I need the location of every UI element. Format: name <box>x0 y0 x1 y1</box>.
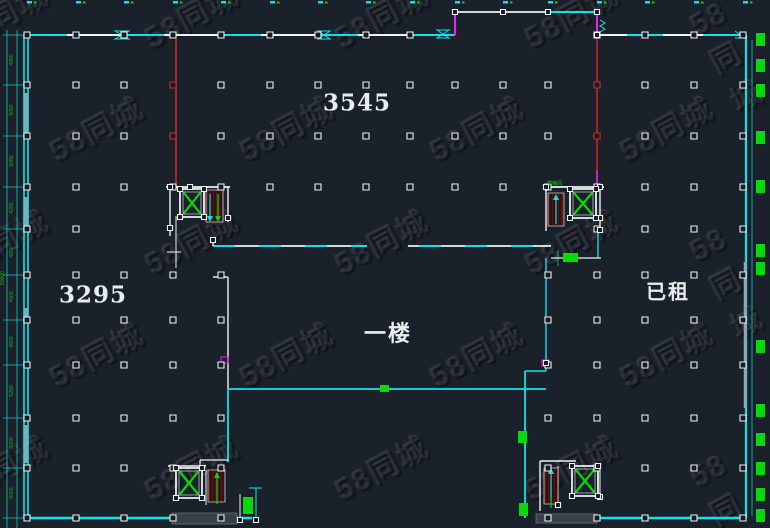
axis-ticks-top <box>27 1 753 4</box>
column-marker <box>407 82 413 88</box>
column-marker <box>691 184 697 190</box>
column-marker <box>740 272 746 278</box>
column-marker <box>595 33 600 38</box>
column-marker <box>545 272 551 278</box>
column-marker <box>500 82 506 88</box>
column-marker <box>556 503 561 508</box>
column-marker <box>174 466 179 471</box>
opening-marker <box>756 131 765 144</box>
rented-label: 已租 <box>646 276 690 305</box>
opening-marker <box>756 404 765 417</box>
opening-marker <box>756 244 765 257</box>
column-marker <box>545 82 551 88</box>
column-marker <box>407 32 413 38</box>
column-marker <box>24 415 30 421</box>
axis-tick <box>604 2 607 4</box>
column-marker <box>24 317 30 323</box>
column-marker <box>594 187 599 192</box>
column-marker <box>73 415 79 421</box>
column-marker <box>73 317 79 323</box>
column-marker <box>594 415 600 421</box>
column-marker <box>218 415 224 421</box>
column-marker <box>596 494 601 499</box>
axis-tick <box>228 2 231 4</box>
column-marker <box>594 317 600 323</box>
column-marker <box>73 133 79 139</box>
column-marker <box>740 184 746 190</box>
column-marker <box>170 272 176 278</box>
opening-marker <box>756 340 765 353</box>
column-marker <box>594 133 600 139</box>
opening-marker <box>756 33 765 46</box>
opening-marker <box>756 488 765 501</box>
column-marker <box>594 362 600 368</box>
dimension-label: 5050 <box>9 104 15 115</box>
right-edge-markers <box>756 33 765 522</box>
column-marker <box>691 226 697 232</box>
column-marker <box>254 518 259 523</box>
column-marker <box>546 10 551 15</box>
column-marker <box>170 415 176 421</box>
column-marker <box>595 10 600 15</box>
door-marker <box>563 253 578 262</box>
opening-marker <box>756 509 765 522</box>
axis-tick <box>180 2 183 4</box>
axis-tick <box>366 1 371 4</box>
column-marker <box>267 32 273 38</box>
column-marker <box>691 82 697 88</box>
door-marker <box>518 431 527 443</box>
door-symbol-icon <box>600 20 605 32</box>
column-marker <box>24 272 30 278</box>
column-marker <box>740 317 746 323</box>
column-marker <box>740 362 746 368</box>
floor-label: 一楼 <box>364 316 412 348</box>
column-marker <box>73 32 79 38</box>
column-marker <box>178 215 183 220</box>
column-marker <box>202 215 207 220</box>
axis-tick <box>701 2 704 4</box>
column-marker <box>73 515 79 521</box>
column-marker <box>740 133 746 139</box>
opening-marker <box>756 262 765 275</box>
column-marker <box>691 317 697 323</box>
column-marker <box>363 32 369 38</box>
column-marker <box>642 133 648 139</box>
axis-tick <box>270 1 275 4</box>
column-marker <box>452 133 458 139</box>
column-marker <box>740 226 746 232</box>
column-marker <box>740 515 746 521</box>
column-marker <box>24 82 30 88</box>
axis-tick <box>124 1 129 4</box>
core-top-right <box>546 187 604 232</box>
dimension-label: 5000 <box>9 437 15 448</box>
column-marker <box>121 317 127 323</box>
column-marker <box>691 465 697 471</box>
column-marker <box>642 362 648 368</box>
dimension-label: 5050 <box>9 155 15 166</box>
axis-tick <box>34 2 37 4</box>
column-marker <box>73 362 79 368</box>
column-marker <box>594 82 600 88</box>
column-marker <box>545 465 551 471</box>
axis-tick <box>373 2 376 4</box>
column-marker <box>174 496 179 501</box>
dimension-label: 5000 <box>9 487 15 498</box>
column-marker <box>691 362 697 368</box>
door-marker <box>380 385 389 392</box>
column-marker <box>642 515 648 521</box>
column-marker <box>315 32 321 38</box>
dimension-label: 5250 <box>9 385 15 396</box>
column-marker <box>545 317 551 323</box>
column-marker <box>570 464 575 469</box>
dimension-label: 4500 <box>9 291 15 302</box>
dimension-label: 4950 <box>9 54 15 65</box>
column-marker <box>594 216 599 221</box>
dimension-label: 4500 <box>9 336 15 347</box>
column-marker <box>691 32 697 38</box>
opening-marker <box>756 84 765 97</box>
column-marker <box>218 133 224 139</box>
floorplan-drawing: 4950505050504200460045004500525050005000… <box>0 0 770 528</box>
axis-tick <box>743 1 748 4</box>
column-marker <box>218 362 224 368</box>
column-marker <box>500 184 506 190</box>
column-marker <box>24 226 30 232</box>
axis-tick <box>410 1 415 4</box>
column-marker <box>121 272 127 278</box>
column-marker <box>740 32 746 38</box>
column-marker <box>596 464 601 469</box>
column-marker <box>226 216 231 221</box>
column-marker <box>24 515 30 521</box>
column-marker <box>544 361 549 366</box>
opening-marker <box>756 433 765 446</box>
column-marker <box>24 465 30 471</box>
column-marker <box>545 415 551 421</box>
column-marker <box>188 185 193 190</box>
axis-tick <box>221 1 226 4</box>
column-marker <box>691 272 697 278</box>
opening-marker <box>756 462 765 475</box>
column-marker <box>170 362 176 368</box>
column-marker <box>211 238 216 243</box>
column-marker <box>121 415 127 421</box>
column-marker <box>545 133 551 139</box>
column-marker <box>453 10 458 15</box>
area-label-left: 3295 <box>59 282 127 309</box>
column-marker <box>218 82 224 88</box>
column-marker <box>200 496 205 501</box>
column-marker <box>363 133 369 139</box>
axis-tick <box>131 2 134 4</box>
column-marker <box>170 515 176 521</box>
column-marker <box>642 317 648 323</box>
column-marker <box>500 133 506 139</box>
column-marker <box>24 32 30 38</box>
dimension-label: 4200 <box>9 202 15 213</box>
column-marker <box>121 133 127 139</box>
column-marker <box>594 515 600 521</box>
column-marker <box>594 272 600 278</box>
column-marker <box>545 515 551 521</box>
column-grid <box>24 10 746 523</box>
door-marker <box>243 497 253 514</box>
column-marker <box>73 82 79 88</box>
axis-tick <box>27 1 32 4</box>
stair-note-label: 楼梯间 <box>547 180 562 187</box>
axis-tick <box>277 2 280 4</box>
axis-tick <box>645 1 650 4</box>
column-marker <box>642 465 648 471</box>
opening-marker <box>756 59 765 72</box>
axis-tick <box>83 2 86 4</box>
column-marker <box>218 465 224 471</box>
floorplan-canvas: 58同城58同城58同城58同城58同城58同城58同城58同城58同城58同城… <box>0 0 770 528</box>
column-marker <box>642 226 648 232</box>
column-marker <box>168 226 173 231</box>
column-marker <box>691 515 697 521</box>
column-marker <box>363 184 369 190</box>
column-marker <box>267 133 273 139</box>
column-marker <box>568 187 573 192</box>
axis-tick <box>555 2 558 4</box>
column-marker <box>178 187 183 192</box>
axis-tick <box>750 2 753 4</box>
column-marker <box>121 184 127 190</box>
axis-tick <box>548 1 553 4</box>
column-marker <box>170 317 176 323</box>
column-marker <box>740 415 746 421</box>
column-marker <box>642 415 648 421</box>
area-label-top: 3545 <box>323 90 391 117</box>
column-marker <box>218 272 224 278</box>
axis-tick <box>462 2 465 4</box>
opening-marker <box>756 180 765 193</box>
column-marker <box>315 82 321 88</box>
column-marker <box>24 362 30 368</box>
column-marker <box>740 82 746 88</box>
column-marker <box>121 465 127 471</box>
column-marker <box>570 494 575 499</box>
column-marker <box>642 32 648 38</box>
axis-tick <box>417 2 420 4</box>
column-marker <box>202 187 207 192</box>
column-marker <box>501 10 506 15</box>
column-marker <box>218 515 224 521</box>
axis-tick <box>652 2 655 4</box>
column-marker <box>24 133 30 139</box>
column-marker <box>315 133 321 139</box>
column-marker <box>238 518 243 523</box>
axis-tick <box>694 1 699 4</box>
column-marker <box>642 184 648 190</box>
entry-canopy <box>172 513 237 524</box>
column-marker <box>73 465 79 471</box>
column-marker <box>168 185 173 190</box>
column-marker <box>170 133 176 139</box>
axis-tick <box>597 1 602 4</box>
axis-tick <box>76 1 81 4</box>
column-marker <box>452 184 458 190</box>
axis-tick <box>325 2 328 4</box>
column-marker <box>121 515 127 521</box>
column-marker <box>121 82 127 88</box>
column-marker <box>218 317 224 323</box>
column-marker <box>170 32 176 38</box>
column-marker <box>315 184 321 190</box>
column-marker <box>170 82 176 88</box>
column-marker <box>73 272 79 278</box>
column-marker <box>218 32 224 38</box>
column-marker <box>267 184 273 190</box>
axis-tick <box>455 1 460 4</box>
column-marker <box>73 184 79 190</box>
column-marker <box>740 465 746 471</box>
column-marker <box>218 184 224 190</box>
column-marker <box>121 32 127 38</box>
door-marker <box>519 503 528 516</box>
dimension-label: 4600 <box>9 246 15 257</box>
column-marker <box>691 415 697 421</box>
column-marker <box>73 226 79 232</box>
column-marker <box>691 133 697 139</box>
column-marker <box>363 82 369 88</box>
column-marker <box>568 216 573 221</box>
axis-tick <box>173 1 178 4</box>
column-marker <box>598 228 603 233</box>
lobby-walls <box>167 216 601 518</box>
column-marker <box>267 82 273 88</box>
dimension-label-overall: 50000 <box>0 271 6 285</box>
core-bottom-left <box>168 460 262 520</box>
axis-tick <box>510 2 513 4</box>
column-marker <box>200 466 205 471</box>
axis-tick <box>503 1 508 4</box>
axis-tick <box>318 1 323 4</box>
column-marker <box>407 133 413 139</box>
column-marker <box>24 184 30 190</box>
column-marker <box>407 184 413 190</box>
column-marker <box>642 82 648 88</box>
column-marker <box>121 362 127 368</box>
column-marker <box>452 82 458 88</box>
